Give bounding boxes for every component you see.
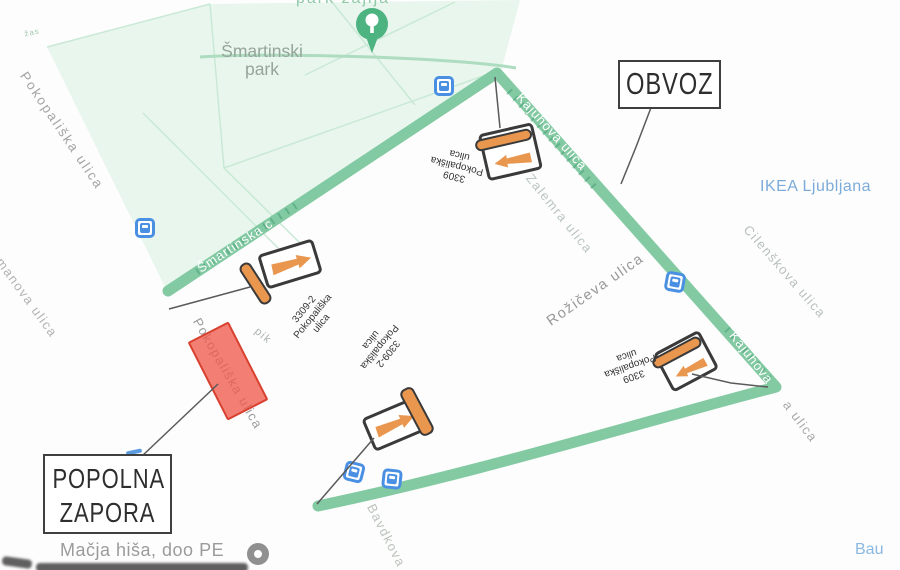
leader-line-sign-top <box>495 77 500 128</box>
poi-label-bau[interactable]: Bau <box>855 541 883 559</box>
street-label-kajuhova-tail: a ulica <box>772 387 829 456</box>
bus-stop-icon[interactable] <box>663 270 686 293</box>
zapora-label-line2: ZAPORA <box>53 494 163 532</box>
bus-stop-icon[interactable] <box>434 76 454 96</box>
sign-text-bottom: 3309-2 Pokopališka ulica <box>335 297 424 395</box>
sign-text-right: 3309 Pokopališka ulica <box>577 334 682 398</box>
bus-stop-icon[interactable] <box>135 218 155 238</box>
street-label-zas-fragment: žas <box>12 24 53 41</box>
leader-line-zapora <box>141 384 218 457</box>
cutoff-text-smudge <box>36 563 248 570</box>
macja-poi-icon[interactable] <box>247 543 269 565</box>
traffic-sign-bottom <box>355 395 465 475</box>
park-label-line1: Šmartinski <box>207 42 317 60</box>
park-label: Šmartinski park <box>207 42 317 78</box>
street-label-top-cut: park žajlja <box>243 0 443 8</box>
poi-label-macja[interactable]: Mačja hiša, doo PE <box>60 540 224 561</box>
street-label-manova: manova ulica <box>0 249 65 347</box>
sign-street: Pokopališka <box>343 304 414 389</box>
obvoz-label: OBVOZ <box>626 59 714 109</box>
cutoff-text-smudge <box>2 556 33 569</box>
poi-label-ikea[interactable]: IKEA Ljubljana <box>760 178 871 196</box>
street-label-cilenskova: Cilenškova ulica <box>733 214 836 330</box>
street-label-pokopaliska-nw: Pokopališka ulica <box>14 64 110 197</box>
tree-pin-icon[interactable] <box>353 6 391 54</box>
sign-panel <box>257 238 323 289</box>
sign-arrow-icon <box>267 248 316 282</box>
park-label-line2: park <box>207 60 317 78</box>
map-canvas: Pokopališka ulica manova ulica Zalemra u… <box>0 0 900 570</box>
zapora-label-box: POPOLNA ZAPORA <box>43 454 172 534</box>
street-label-bavdkova: Bavdkova <box>358 490 414 570</box>
obvoz-label-box: OBVOZ <box>618 60 721 109</box>
leader-line-obvoz <box>621 105 652 184</box>
street-label-kajuhova-corner: Kajuhova <box>716 315 786 399</box>
zapora-label-line1: POPOLNA <box>53 460 163 498</box>
